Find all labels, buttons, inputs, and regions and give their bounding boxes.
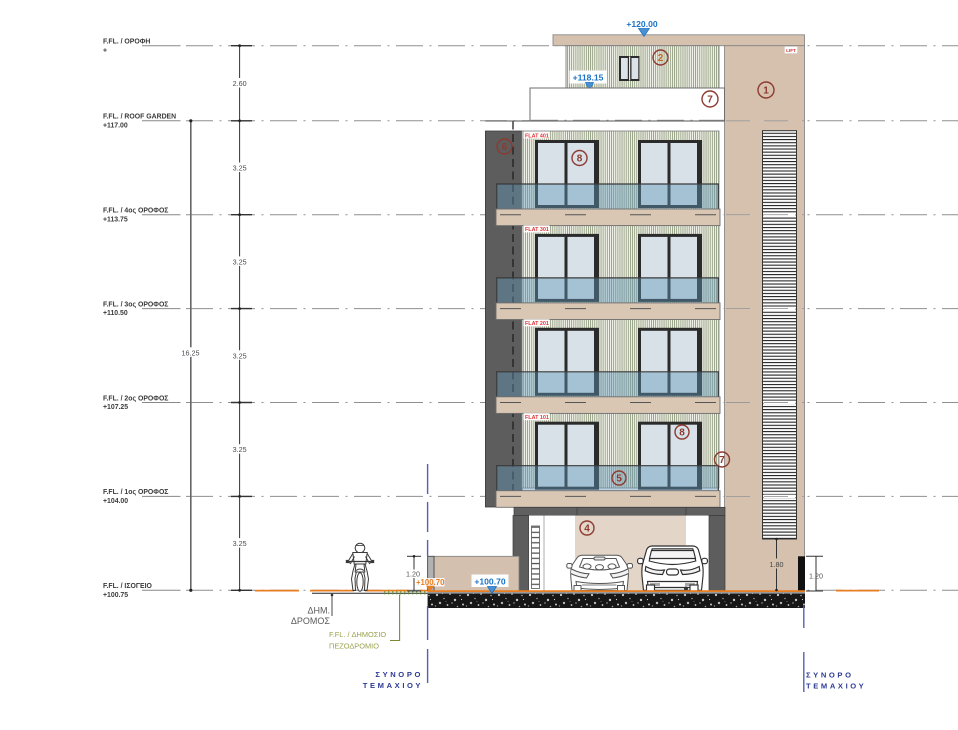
svg-text:F.FL. / 4ος ΟΡΟΦΟΣ: F.FL. / 4ος ΟΡΟΦΟΣ [103, 208, 168, 215]
svg-text:3.25: 3.25 [233, 257, 247, 266]
svg-text:2: 2 [658, 53, 664, 64]
svg-text:2.60: 2.60 [233, 79, 247, 88]
svg-text:ΔΡΟΜΟΣ: ΔΡΟΜΟΣ [291, 616, 331, 626]
svg-text:+100.75: +100.75 [103, 592, 128, 599]
svg-text:F.FL. / ΔΗΜΟΣΙΟ: F.FL. / ΔΗΜΟΣΙΟ [329, 630, 386, 639]
svg-text:+117.00: +117.00 [103, 122, 128, 129]
svg-text:8: 8 [577, 154, 583, 165]
svg-text:ΣΥΝΟΡΟ: ΣΥΝΟΡΟ [375, 670, 423, 679]
svg-text:8: 8 [679, 428, 685, 439]
svg-text:F.FL. / 1ος ΟΡΟΦΟΣ: F.FL. / 1ος ΟΡΟΦΟΣ [103, 489, 168, 496]
svg-text:+: + [103, 48, 107, 55]
svg-text:3.25: 3.25 [233, 445, 247, 454]
svg-text:+120.00: +120.00 [626, 19, 658, 29]
svg-text:7: 7 [707, 95, 713, 106]
svg-text:ΠΕΖΟΔΡΟΜΙΟ: ΠΕΖΟΔΡΟΜΙΟ [329, 642, 379, 651]
svg-text:+118.15: +118.15 [573, 73, 604, 83]
svg-text:F.FL. / ΟΡΟΦΗ: F.FL. / ΟΡΟΦΗ [103, 39, 150, 46]
svg-text:+113.75: +113.75 [103, 216, 128, 223]
svg-text:ΔΗΜ.: ΔΗΜ. [307, 606, 330, 616]
svg-text:3.25: 3.25 [233, 539, 247, 548]
svg-text:+100.70: +100.70 [474, 577, 506, 587]
svg-text:FLAT 401: FLAT 401 [525, 133, 549, 139]
svg-text:1: 1 [763, 86, 769, 97]
svg-text:FLAT 101: FLAT 101 [525, 415, 549, 421]
svg-text:F.FL. / ROOF GARDEN: F.FL. / ROOF GARDEN [103, 114, 176, 121]
svg-text:3.25: 3.25 [233, 351, 247, 360]
svg-text:ΤΕΜΑΧΙΟΥ: ΤΕΜΑΧΙΟΥ [806, 682, 866, 691]
svg-text:F.FL. / ΙΣΟΓΕΙΟ: F.FL. / ΙΣΟΓΕΙΟ [103, 583, 152, 590]
svg-text:+104.00: +104.00 [103, 498, 128, 505]
svg-text:ΣΥΝΟΡΟ: ΣΥΝΟΡΟ [806, 671, 854, 680]
svg-text:3.25: 3.25 [233, 164, 247, 173]
svg-text:1.80: 1.80 [770, 560, 784, 569]
svg-text:5: 5 [616, 474, 622, 485]
svg-text:7: 7 [719, 455, 725, 466]
svg-text:1.20: 1.20 [809, 572, 823, 581]
svg-text:6: 6 [502, 142, 508, 153]
svg-text:F.FL. / 3ος ΟΡΟΦΟΣ: F.FL. / 3ος ΟΡΟΦΟΣ [103, 301, 168, 308]
svg-text:+100.70: +100.70 [416, 578, 445, 587]
svg-text:FLAT 201: FLAT 201 [525, 321, 549, 327]
svg-text:F.FL. / 2ος ΟΡΟΦΟΣ: F.FL. / 2ος ΟΡΟΦΟΣ [103, 395, 168, 402]
svg-text:FLAT 301: FLAT 301 [525, 227, 549, 233]
svg-text:+107.25: +107.25 [103, 404, 128, 411]
svg-text:4: 4 [584, 524, 590, 535]
svg-text:16.25: 16.25 [182, 348, 200, 357]
svg-text:ΤΕΜΑΧΙΟΥ: ΤΕΜΑΧΙΟΥ [363, 681, 423, 690]
svg-text:+110.50: +110.50 [103, 310, 128, 317]
svg-text:LIFT: LIFT [786, 48, 796, 53]
